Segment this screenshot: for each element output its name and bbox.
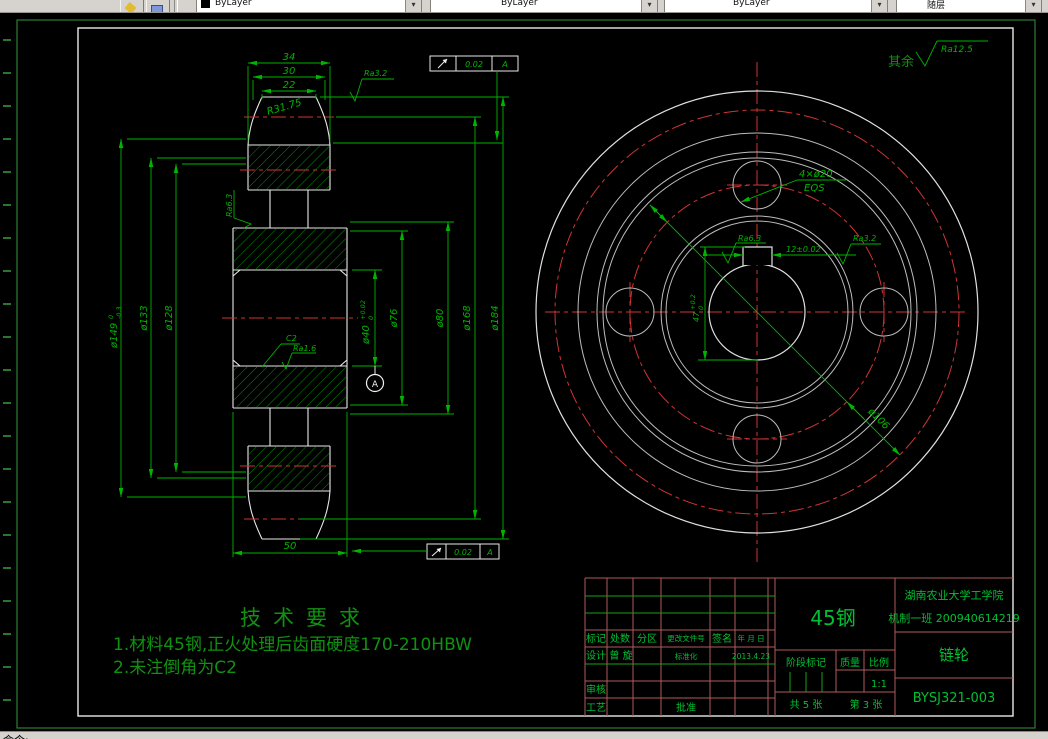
class-id: 机制一班 200940614219 <box>888 611 1019 625</box>
part-name: 链轮 <box>939 646 969 664</box>
roughness-label: Ra3.2 <box>364 69 387 78</box>
tolerance-datum: A <box>501 60 507 69</box>
plotstyle-combobox-value: 随层 <box>927 0 945 11</box>
review-label: 审核 <box>586 683 606 696</box>
dim-tol-up: +0.2 <box>689 294 697 310</box>
general-roughness-note: 其余 Ra12.5 <box>888 41 988 70</box>
material-label: 45钢 <box>810 606 855 630</box>
col-signature: 签名 <box>712 632 732 645</box>
dim-radius: R31.75 <box>266 97 303 117</box>
hatch-rim-bottom <box>249 447 329 490</box>
chevron-down-icon[interactable]: ▾ <box>641 0 657 12</box>
dim-label: ø184 <box>490 305 501 331</box>
sheet-number: 第 3 张 <box>850 698 883 711</box>
technical-requirements: 技术要求 1.材料45钢,正火处理后齿面硬度170-210HBW 2.未注倒角为… <box>113 606 472 678</box>
standard-label: 标准化 <box>675 651 698 661</box>
chevron-down-icon[interactable]: ▾ <box>1025 0 1041 12</box>
drawing-number: BYSJ321-003 <box>913 691 996 706</box>
dim-width-22: 22 <box>262 80 316 99</box>
plotstyle-combobox[interactable]: 随层 ▾ <box>896 0 1042 13</box>
cad-application-window: ByLayer ▾ ByLayer ▾ ByLayer ▾ 随层 ▾ <box>0 0 1048 739</box>
roughness-label: Ra6.3 <box>225 194 234 217</box>
tech-req-title: 技术要求 <box>240 606 372 630</box>
surface-finish-top: Ra3.2 <box>350 69 394 101</box>
linetype-combobox[interactable]: ByLayer ▾ <box>430 0 658 13</box>
roughness-label: Ra3.2 <box>853 234 876 243</box>
col-chushu: 处数 <box>610 632 630 645</box>
tech-req-line2: 2.未注倒角为C2 <box>113 658 237 678</box>
dim-label: ø40 <box>361 325 372 345</box>
tolerance-value: 0.02 <box>465 60 483 69</box>
dim-label: ø149 <box>109 323 120 349</box>
color-combobox-value: ByLayer <box>215 0 252 8</box>
tolerance-frame-top: 0.02 A <box>333 56 518 143</box>
lineweight-combobox-value: ByLayer <box>733 0 770 8</box>
design-date: 2013.4.23 <box>732 652 770 661</box>
scale-label: 比例 <box>869 656 889 669</box>
color-swatch <box>201 0 210 8</box>
dim-label: ø106 <box>865 406 891 432</box>
dim-dia40: ø40 +0.02 0 A <box>352 270 384 392</box>
drawing-frame <box>78 28 1013 716</box>
make-layer-current-icon <box>124 2 136 13</box>
chevron-down-icon[interactable]: ▾ <box>871 0 887 12</box>
layer-tool-button[interactable] <box>120 0 144 13</box>
roughness-label: Ra12.5 <box>941 45 973 55</box>
tech-req-line1: 1.材料45钢,正火处理后齿面硬度170-210HBW <box>113 635 472 655</box>
dim-tol-dn: -0.3 <box>115 306 123 319</box>
section-view: 34 30 22 R31.75 Ra3.2 <box>107 52 518 559</box>
dim-label: ø80 <box>435 309 446 329</box>
approve-label: 批准 <box>676 701 696 714</box>
holes-eqs-label: EQS <box>804 183 825 194</box>
dim-label: ø76 <box>389 309 400 329</box>
surface-finish-left: Ra6.3 <box>225 190 251 228</box>
tolerance-datum: A <box>486 548 492 557</box>
command-prompt-text: 命令: <box>3 732 29 739</box>
dim-label: R31.75 <box>266 97 303 117</box>
col-change-file: 更改文件号 <box>667 633 705 643</box>
linetype-combobox-value: ByLayer <box>501 0 538 8</box>
dim-label: ø128 <box>164 305 175 331</box>
layers-tool-button[interactable] <box>146 0 170 13</box>
dim-tol-dn: 0 <box>697 306 705 310</box>
note-text: 其余 <box>888 54 914 70</box>
surface-finish-keyway: Ra3.2 <box>837 234 881 264</box>
process-label: 工艺 <box>586 702 606 714</box>
hatch-hub-bottom <box>234 367 346 407</box>
dim-label: 34 <box>283 52 296 63</box>
sheets-total: 共 5 张 <box>790 699 823 711</box>
dim-label: 50 <box>284 541 297 552</box>
dim-label: 22 <box>283 80 296 91</box>
paper-border <box>3 20 1035 728</box>
keyway-mask <box>744 247 771 265</box>
dim-label: 30 <box>283 66 296 77</box>
dim-label: 47 <box>692 311 701 322</box>
col-date: 年 月 日 <box>737 633 764 643</box>
datum-letter: A <box>372 380 379 390</box>
design-label: 设计 <box>586 649 606 662</box>
title-block: 标记 处数 分区 更改文件号 签名 年 月 日 设计 曾 旋 标准化 2013.… <box>585 578 1020 716</box>
dim-label: ø168 <box>462 305 473 331</box>
col-fenqu: 分区 <box>637 633 657 645</box>
front-view: 4×ø20 EQS Ra6.3 Ra3.2 12±0.02 <box>536 41 988 562</box>
dim-label: 12±0.02 <box>786 245 821 254</box>
col-biaoji: 标记 <box>586 633 606 645</box>
roughness-label: Ra6.3 <box>738 234 761 243</box>
dim-tol-up: +0.02 <box>359 300 367 320</box>
properties-toolbar: ByLayer ▾ ByLayer ▾ ByLayer ▾ 随层 ▾ <box>0 0 1048 13</box>
hatch-hub-top <box>234 229 346 269</box>
drawing-canvas[interactable]: 34 30 22 R31.75 Ra3.2 <box>0 0 1048 739</box>
toolbar-separator <box>174 0 178 12</box>
school-name: 湖南农业大学工学院 <box>905 588 1004 602</box>
color-combobox[interactable]: ByLayer ▾ <box>196 0 422 13</box>
tolerance-frame-bottom: 0.02 A <box>352 544 499 559</box>
command-line[interactable]: 命令: <box>0 731 1048 739</box>
chamfer-label: C2 <box>286 334 297 343</box>
scale-value: 1:1 <box>871 679 887 690</box>
lineweight-combobox[interactable]: ByLayer ▾ <box>664 0 888 13</box>
weight-label: 质量 <box>840 657 860 669</box>
layers-icon <box>151 5 163 13</box>
dim-tol-up: 0 <box>107 315 115 319</box>
dim-tol-dn: 0 <box>367 316 375 320</box>
stage-label: 阶段标记 <box>786 656 826 669</box>
holes-label: 4×ø20 <box>799 169 833 180</box>
chamfer-note: C2 Ra1.6 <box>262 334 316 369</box>
tolerance-value: 0.02 <box>454 548 472 557</box>
dim-label: ø133 <box>139 305 150 331</box>
designer-name: 曾 旋 <box>609 649 632 662</box>
hatch-rim-top <box>249 146 329 189</box>
roughness-label: Ra1.6 <box>293 344 316 353</box>
chevron-down-icon[interactable]: ▾ <box>405 0 421 12</box>
